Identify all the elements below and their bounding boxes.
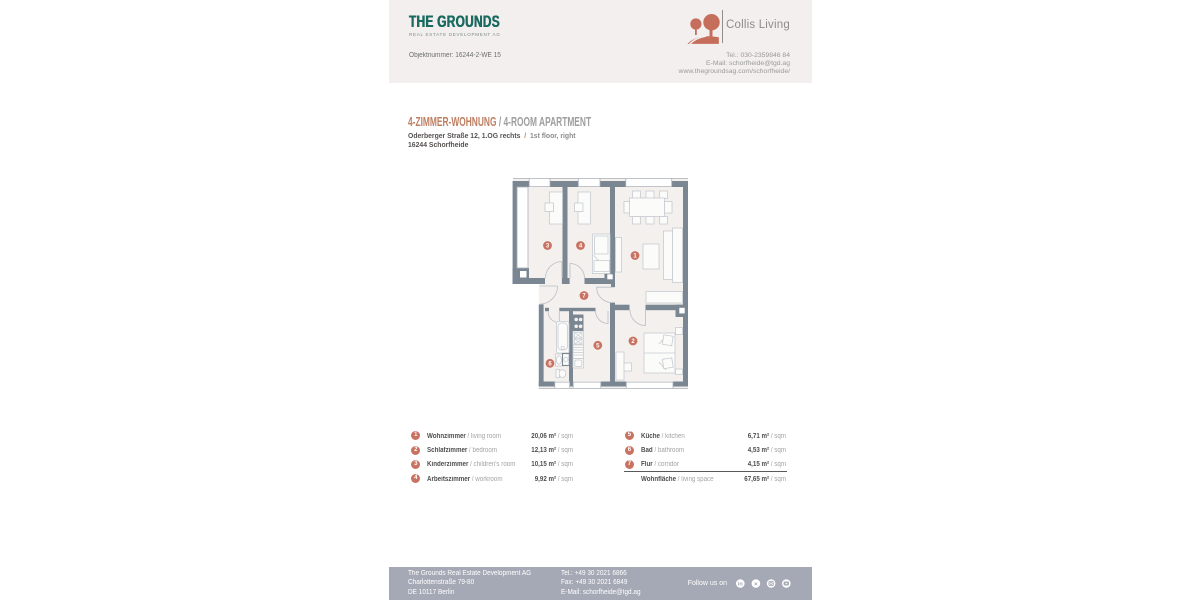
svg-text:×: × bbox=[754, 581, 758, 588]
svg-text:in: in bbox=[738, 582, 744, 588]
